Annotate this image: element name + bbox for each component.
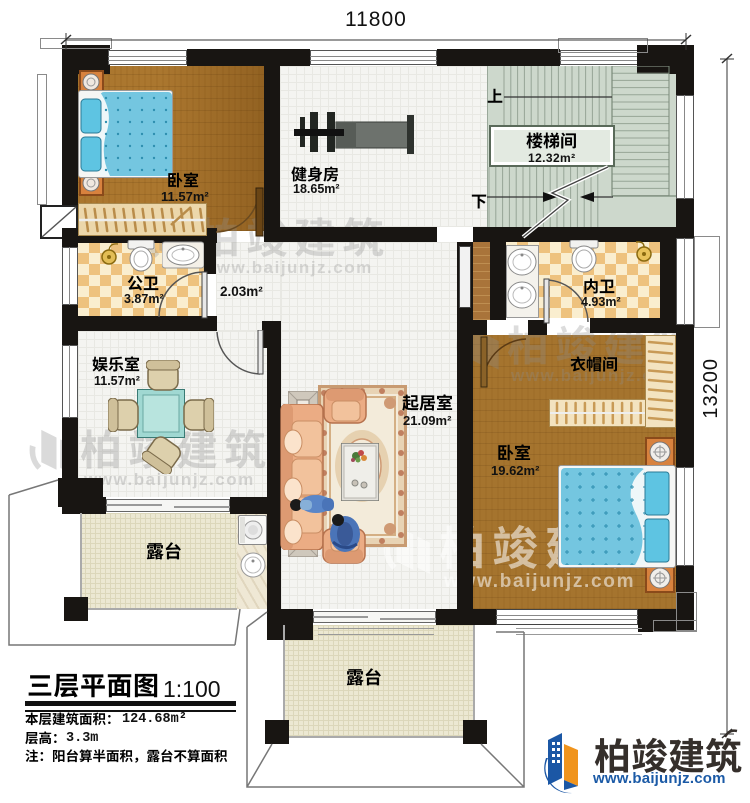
svg-text:www.baijunjz.com: www.baijunjz.com: [201, 258, 373, 277]
